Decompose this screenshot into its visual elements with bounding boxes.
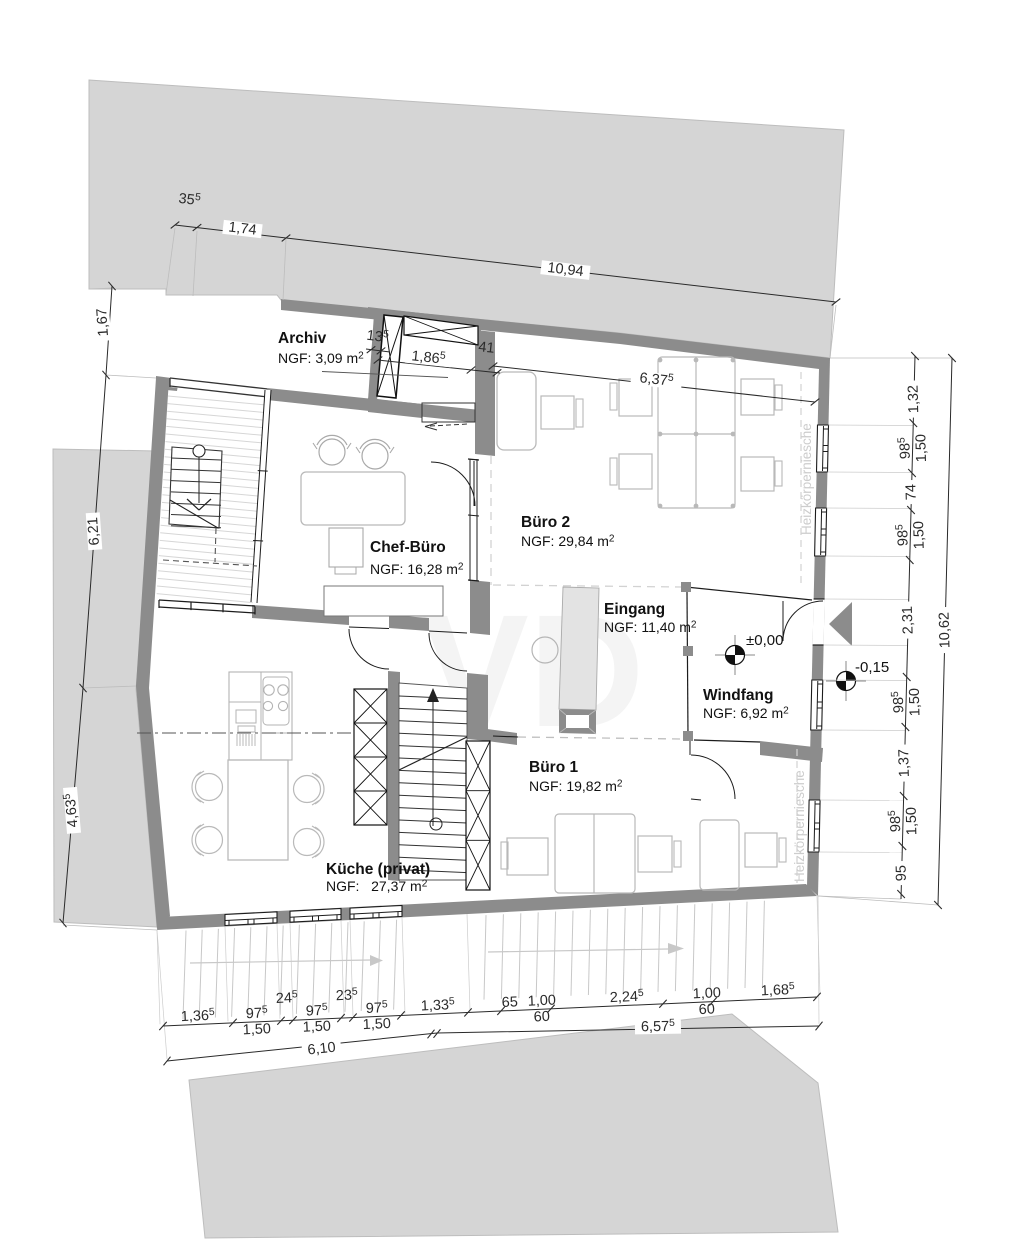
svg-text:Windfang: Windfang — [703, 687, 773, 704]
svg-text:65: 65 — [501, 994, 518, 1011]
svg-text:1,50: 1,50 — [242, 1021, 271, 1038]
svg-text:60: 60 — [698, 1001, 715, 1018]
svg-text:95: 95 — [893, 865, 909, 882]
svg-text:1,37: 1,37 — [896, 749, 913, 778]
svg-text:1,50: 1,50 — [913, 434, 930, 463]
svg-text:1,00: 1,00 — [527, 992, 556, 1009]
svg-text:NGF: 19,82 m2: NGF: 19,82 m2 — [529, 778, 623, 794]
svg-text:±0,00: ±0,00 — [746, 632, 783, 649]
svg-text:1,74: 1,74 — [228, 219, 258, 238]
svg-text:1,50: 1,50 — [911, 521, 928, 550]
svg-text:6,21: 6,21 — [85, 517, 103, 546]
svg-text:1,50: 1,50 — [907, 688, 924, 717]
svg-text:NGF: 6,92 m2: NGF: 6,92 m2 — [703, 705, 789, 721]
svg-text:Chef-Büro: Chef-Büro — [370, 539, 446, 556]
svg-text:1,50: 1,50 — [904, 807, 921, 836]
svg-text:Büro 2: Büro 2 — [521, 514, 570, 531]
svg-text:Eingang: Eingang — [604, 601, 665, 618]
svg-text:-0,15: -0,15 — [855, 659, 889, 676]
svg-text:NGF: 11,40 m2: NGF: 11,40 m2 — [604, 619, 697, 635]
svg-text:74: 74 — [903, 484, 919, 501]
svg-text:6,10: 6,10 — [307, 1040, 337, 1059]
svg-text:NGF: 27,37 m2: NGF: 27,37 m2 — [326, 878, 428, 894]
svg-text:60: 60 — [533, 1009, 550, 1026]
svg-text:1,00: 1,00 — [692, 985, 721, 1002]
svg-text:Archiv: Archiv — [278, 330, 327, 347]
svg-text:10,62: 10,62 — [937, 612, 954, 649]
svg-text:2,31: 2,31 — [900, 606, 917, 635]
svg-text:41: 41 — [478, 339, 496, 357]
svg-text:NGF: 16,28 m2: NGF: 16,28 m2 — [370, 561, 464, 577]
svg-text:1,67: 1,67 — [94, 308, 112, 337]
svg-text:Büro 1: Büro 1 — [529, 759, 578, 776]
svg-text:NGF: 29,84 m2: NGF: 29,84 m2 — [521, 533, 615, 549]
svg-text:Küche (privat): Küche (privat) — [326, 861, 430, 878]
svg-text:NGF: 3,09 m2: NGF: 3,09 m2 — [278, 350, 364, 366]
svg-text:1,50: 1,50 — [362, 1016, 391, 1033]
svg-text:1,50: 1,50 — [302, 1018, 331, 1035]
svg-text:Heizkörperniesche: Heizkörperniesche — [792, 770, 807, 882]
svg-text:1,32: 1,32 — [906, 385, 923, 414]
svg-text:Heizkörperniesche: Heizkörperniesche — [799, 423, 814, 535]
